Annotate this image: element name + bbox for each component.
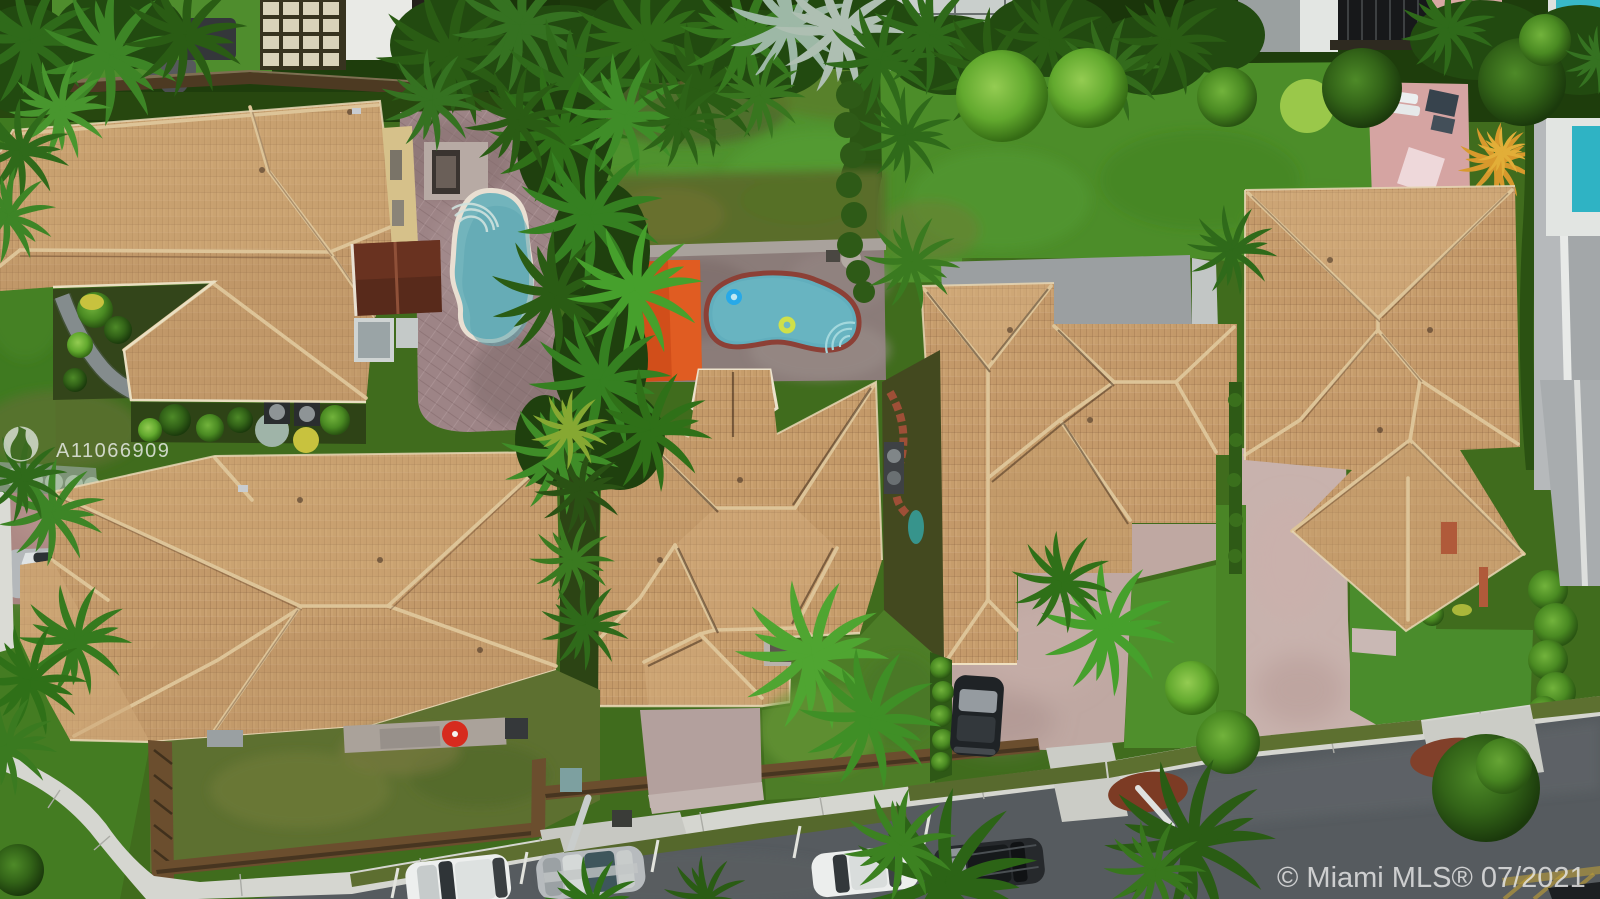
svg-text:A11066909: A11066909 [56,440,170,462]
svg-text:© Miami MLS® 07/2021: © Miami MLS® 07/2021 [1277,862,1586,894]
